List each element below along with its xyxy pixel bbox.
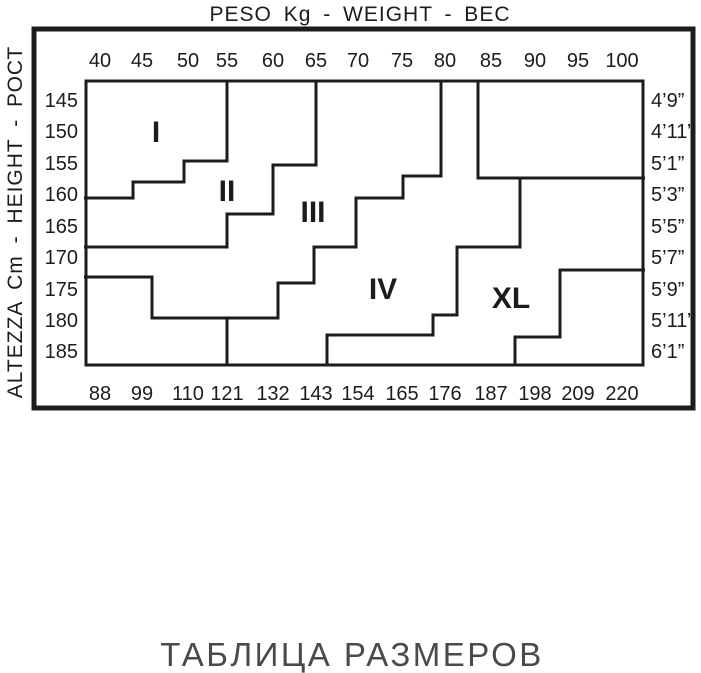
size-boundary-line	[84, 81, 316, 247]
height-tick-cm: 180	[45, 310, 78, 332]
weight-tick-kg: 55	[216, 50, 238, 72]
height-axis-title: ALTEZZA Cm - HEIGHT - РОСТ	[4, 46, 27, 398]
height-tick-ftin: 5’5”	[651, 216, 684, 238]
size-zone-label: II	[219, 175, 236, 208]
size-boundary-line	[478, 81, 645, 178]
weight-tick-kg: 95	[567, 50, 589, 72]
weight-tick-lbs: 154	[341, 383, 374, 405]
chart-caption: ТАБЛИЦА РАЗМЕРОВ	[160, 636, 544, 673]
weight-tick-lbs: 209	[561, 383, 594, 405]
height-tick-ftin: 5’7”	[651, 247, 684, 269]
weight-tick-kg: 40	[89, 50, 111, 72]
weight-tick-kg: 80	[434, 50, 456, 72]
size-zone-label: XL	[492, 282, 530, 315]
height-tick-cm: 165	[45, 216, 78, 238]
weight-tick-lbs: 110	[172, 383, 204, 405]
weight-tick-lbs: 99	[131, 383, 153, 405]
height-tick-cm: 185	[45, 341, 78, 363]
size-zone-label: III	[300, 196, 325, 229]
height-tick-cm: 160	[45, 184, 78, 206]
size-chart-svg: PESO Kg - WEIGHT - ВЕС ALTEZZA Cm - HEIG…	[0, 0, 701, 673]
height-tick-ftin: 5’3”	[651, 184, 684, 206]
weight-tick-kg: 100	[605, 50, 638, 72]
size-zone-label: I	[152, 116, 160, 149]
weight-tick-kg: 65	[305, 50, 327, 72]
height-tick-ftin: 4’9”	[651, 90, 684, 112]
height-tick-cm: 170	[45, 247, 78, 269]
weight-tick-lbs: 132	[256, 383, 289, 405]
height-tick-ftin: 5’9”	[651, 279, 684, 301]
weight-tick-lbs: 198	[518, 383, 551, 405]
height-tick-ftin: 5’11”	[651, 310, 694, 332]
weight-tick-kg: 45	[131, 50, 153, 72]
weight-tick-kg: 75	[391, 50, 413, 72]
height-tick-cm: 175	[45, 279, 78, 301]
weight-tick-lbs: 143	[299, 383, 332, 405]
weight-tick-lbs: 176	[428, 383, 461, 405]
height-tick-ftin: 5’1”	[651, 153, 684, 175]
weight-tick-lbs: 187	[474, 383, 507, 405]
height-tick-cm: 145	[45, 90, 78, 112]
weight-tick-lbs: 165	[385, 383, 418, 405]
size-zone-label: IV	[369, 273, 397, 306]
outer-frame	[34, 29, 693, 408]
size-boundary-line	[515, 270, 645, 366]
weight-axis-title: PESO Kg - WEIGHT - ВЕС	[210, 3, 511, 26]
weight-tick-kg: 85	[480, 50, 502, 72]
weight-tick-kg: 60	[262, 50, 284, 72]
height-tick-cm: 155	[45, 153, 78, 175]
size-chart-figure: PESO Kg - WEIGHT - ВЕС ALTEZZA Cm - HEIG…	[0, 0, 701, 673]
weight-tick-lbs: 220	[605, 383, 638, 405]
weight-tick-lbs: 88	[89, 383, 111, 405]
height-tick-ftin: 6’1”	[651, 341, 684, 363]
weight-tick-kg: 50	[177, 50, 199, 72]
height-tick-ftin: 4’11”	[651, 121, 694, 143]
weight-tick-kg: 90	[524, 50, 546, 72]
weight-tick-lbs: 121	[210, 383, 243, 405]
plot-layer: 4045505560657075808590951008899110121132…	[34, 29, 694, 408]
weight-tick-kg: 70	[347, 50, 369, 72]
height-tick-cm: 150	[45, 121, 78, 143]
